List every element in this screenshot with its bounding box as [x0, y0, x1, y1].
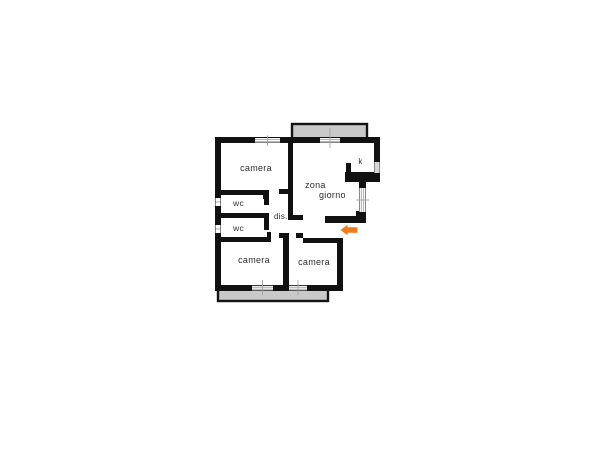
- wall-camera-divider-tick: [279, 233, 289, 238]
- floorplan-drawing: camera zona giorno k wc wc dis. camera c…: [0, 0, 600, 450]
- wall-outer-top: [215, 137, 380, 143]
- wall-camera3-door-jamb: [296, 233, 303, 238]
- room-label-camera-bottom-right: camera: [298, 257, 330, 267]
- wall-camera1-bottom-right: [279, 189, 288, 194]
- wall-central-tick: [288, 215, 303, 220]
- wall-camera1-bottom: [221, 190, 267, 195]
- room-label-camera-top: camera: [240, 163, 272, 173]
- wall-camera3-right: [337, 238, 343, 291]
- wall-wc2-bottom: [221, 237, 267, 242]
- room-label-giorno: giorno: [319, 190, 346, 200]
- floorplan-page: camera zona giorno k wc wc dis. camera c…: [0, 0, 600, 450]
- window-lines: [216, 128, 379, 295]
- room-label-zona: zona: [305, 180, 326, 190]
- wall-wc-right-lower: [264, 213, 269, 230]
- wall-kitchen-stub: [346, 163, 351, 173]
- wall-outer-bottom: [215, 285, 343, 291]
- room-label-wc-upper: wc: [232, 198, 244, 208]
- wall-camera2-door-jamb: [267, 232, 271, 242]
- wall-camera-divider: [283, 238, 289, 291]
- wall-wc-divider: [221, 213, 269, 218]
- entrance-arrow-icon: [341, 225, 358, 235]
- room-label-kitchen: k: [358, 157, 363, 166]
- room-label-camera-bottom-left: camera: [238, 255, 270, 265]
- balcony-top: [292, 124, 367, 139]
- walls: [215, 137, 380, 291]
- room-label-dis: dis.: [274, 212, 288, 221]
- room-labels: camera zona giorno k wc wc dis. camera c…: [232, 157, 363, 267]
- wall-entrance-corner: [356, 211, 366, 223]
- room-label-wc-lower: wc: [232, 223, 244, 233]
- wall-outer-left: [215, 137, 221, 291]
- wall-central-vertical: [288, 143, 293, 220]
- window-kitchen-right: [375, 162, 380, 173]
- wall-wc-right-upper: [264, 190, 269, 205]
